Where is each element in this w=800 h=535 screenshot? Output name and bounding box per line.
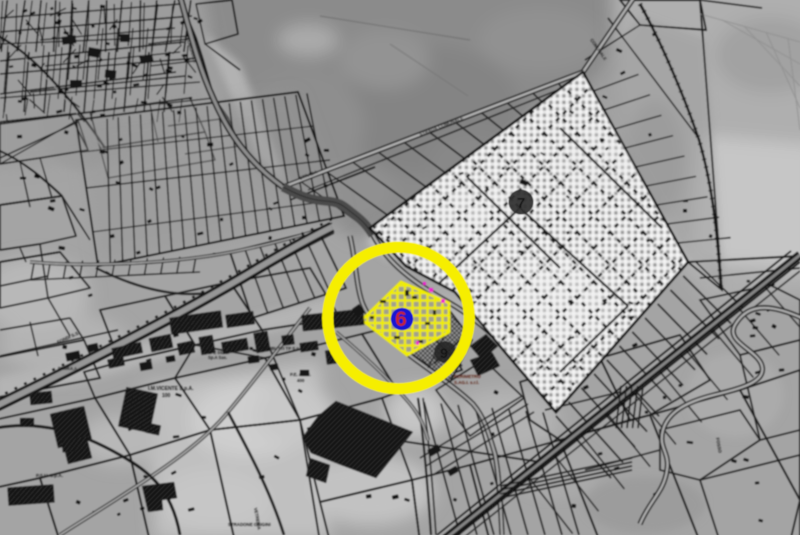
svg-text:PRIMULA: PRIMULA [58,366,77,371]
svg-text:3 PM LIBUTTI TP S.p.a.: 3 PM LIBUTTI TP S.p.a. [256,346,304,351]
svg-text:6: 6 [395,308,407,331]
svg-text:P.S.U. S.p.A.: P.S.U. S.p.A. [36,473,63,478]
svg-text:Sp.A Sas.: Sp.A Sas. [208,355,227,360]
svg-text:400: 400 [297,378,305,383]
svg-text:PERIMETRO: PERIMETRO [454,374,481,379]
svg-text:7: 7 [517,195,525,212]
svg-text:STRADONE ORIGINI: STRADONE ORIGINI [228,522,271,527]
svg-text:I.M.VICENTE S.p.A.: I.M.VICENTE S.p.A. [148,386,194,392]
svg-text:9: 9 [440,345,448,361]
svg-text:100: 100 [162,393,171,399]
svg-text:P.E. Al.Int.: P.E. Al.Int. [290,372,311,377]
svg-text:S.AG.I. s.r.l.: S.AG.I. s.r.l. [454,380,479,385]
